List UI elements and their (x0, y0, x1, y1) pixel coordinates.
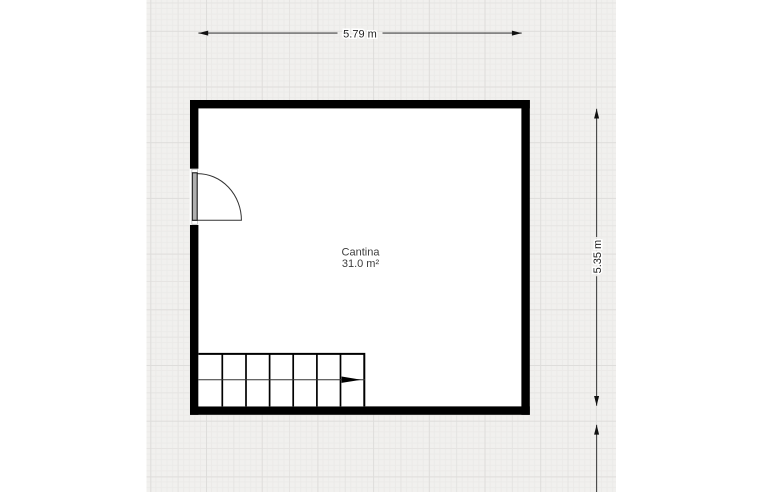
svg-text:5.35 m: 5.35 m (592, 240, 604, 274)
svg-text:5.79 m: 5.79 m (343, 28, 377, 40)
svg-text:31.0 m²: 31.0 m² (342, 258, 380, 270)
svg-text:Cantina: Cantina (342, 246, 381, 258)
